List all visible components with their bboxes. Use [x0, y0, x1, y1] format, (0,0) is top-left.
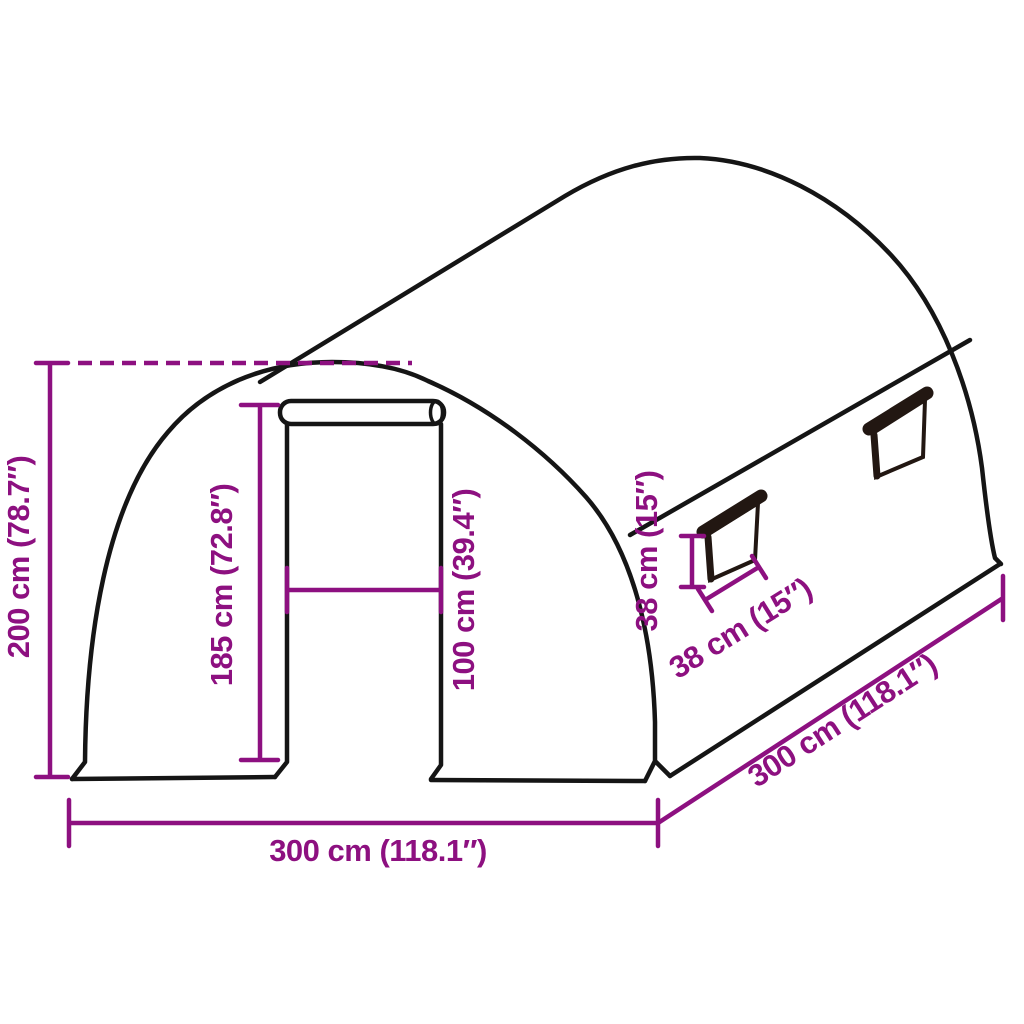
dim-side-length-line [658, 576, 1003, 823]
windows [703, 393, 927, 580]
dim-total-height-line [36, 363, 68, 777]
door-roll-end-cap [431, 401, 443, 424]
dim-side-length: 300 cm (118.1″) [658, 576, 1003, 823]
dim-window-height: 38 cm (15″) [629, 471, 704, 632]
dim-window-height-line [681, 536, 704, 587]
dim-door-width-label: 100 cm (39.4″) [446, 489, 481, 692]
dim-total-height-label: 200 cm (78.7″) [1, 456, 36, 659]
dim-door-height-line [241, 405, 278, 760]
diagram-canvas: 200 cm (78.7″) 185 cm (72.8″) 100 cm (39… [0, 0, 1024, 1024]
dim-door-width: 100 cm (39.4″) [287, 489, 481, 692]
dim-window-width: 38 cm (15″) [663, 556, 818, 686]
window-front [703, 496, 761, 580]
window-front-left-frame [708, 537, 711, 579]
dim-side-length-label: 300 cm (118.1″) [741, 646, 943, 794]
dim-door-height: 185 cm (72.8″) [204, 405, 278, 760]
dim-front-width-label: 300 cm (118.1″) [269, 833, 487, 868]
dimension-annotations: 200 cm (78.7″) 185 cm (72.8″) 100 cm (39… [1, 363, 1003, 868]
window-back-left-frame [874, 435, 877, 476]
window-back [869, 393, 927, 477]
dim-door-width-line [287, 568, 441, 612]
door-roll [280, 401, 444, 424]
greenhouse-dimension-diagram: 200 cm (78.7″) 185 cm (72.8″) 100 cm (39… [0, 0, 1024, 1024]
dim-door-height-label: 185 cm (72.8″) [204, 484, 239, 687]
dim-window-height-label: 38 cm (15″) [629, 471, 664, 632]
front-base-left [72, 777, 275, 779]
dim-front-width: 300 cm (118.1″) [69, 800, 658, 868]
front-base-right [431, 780, 645, 781]
